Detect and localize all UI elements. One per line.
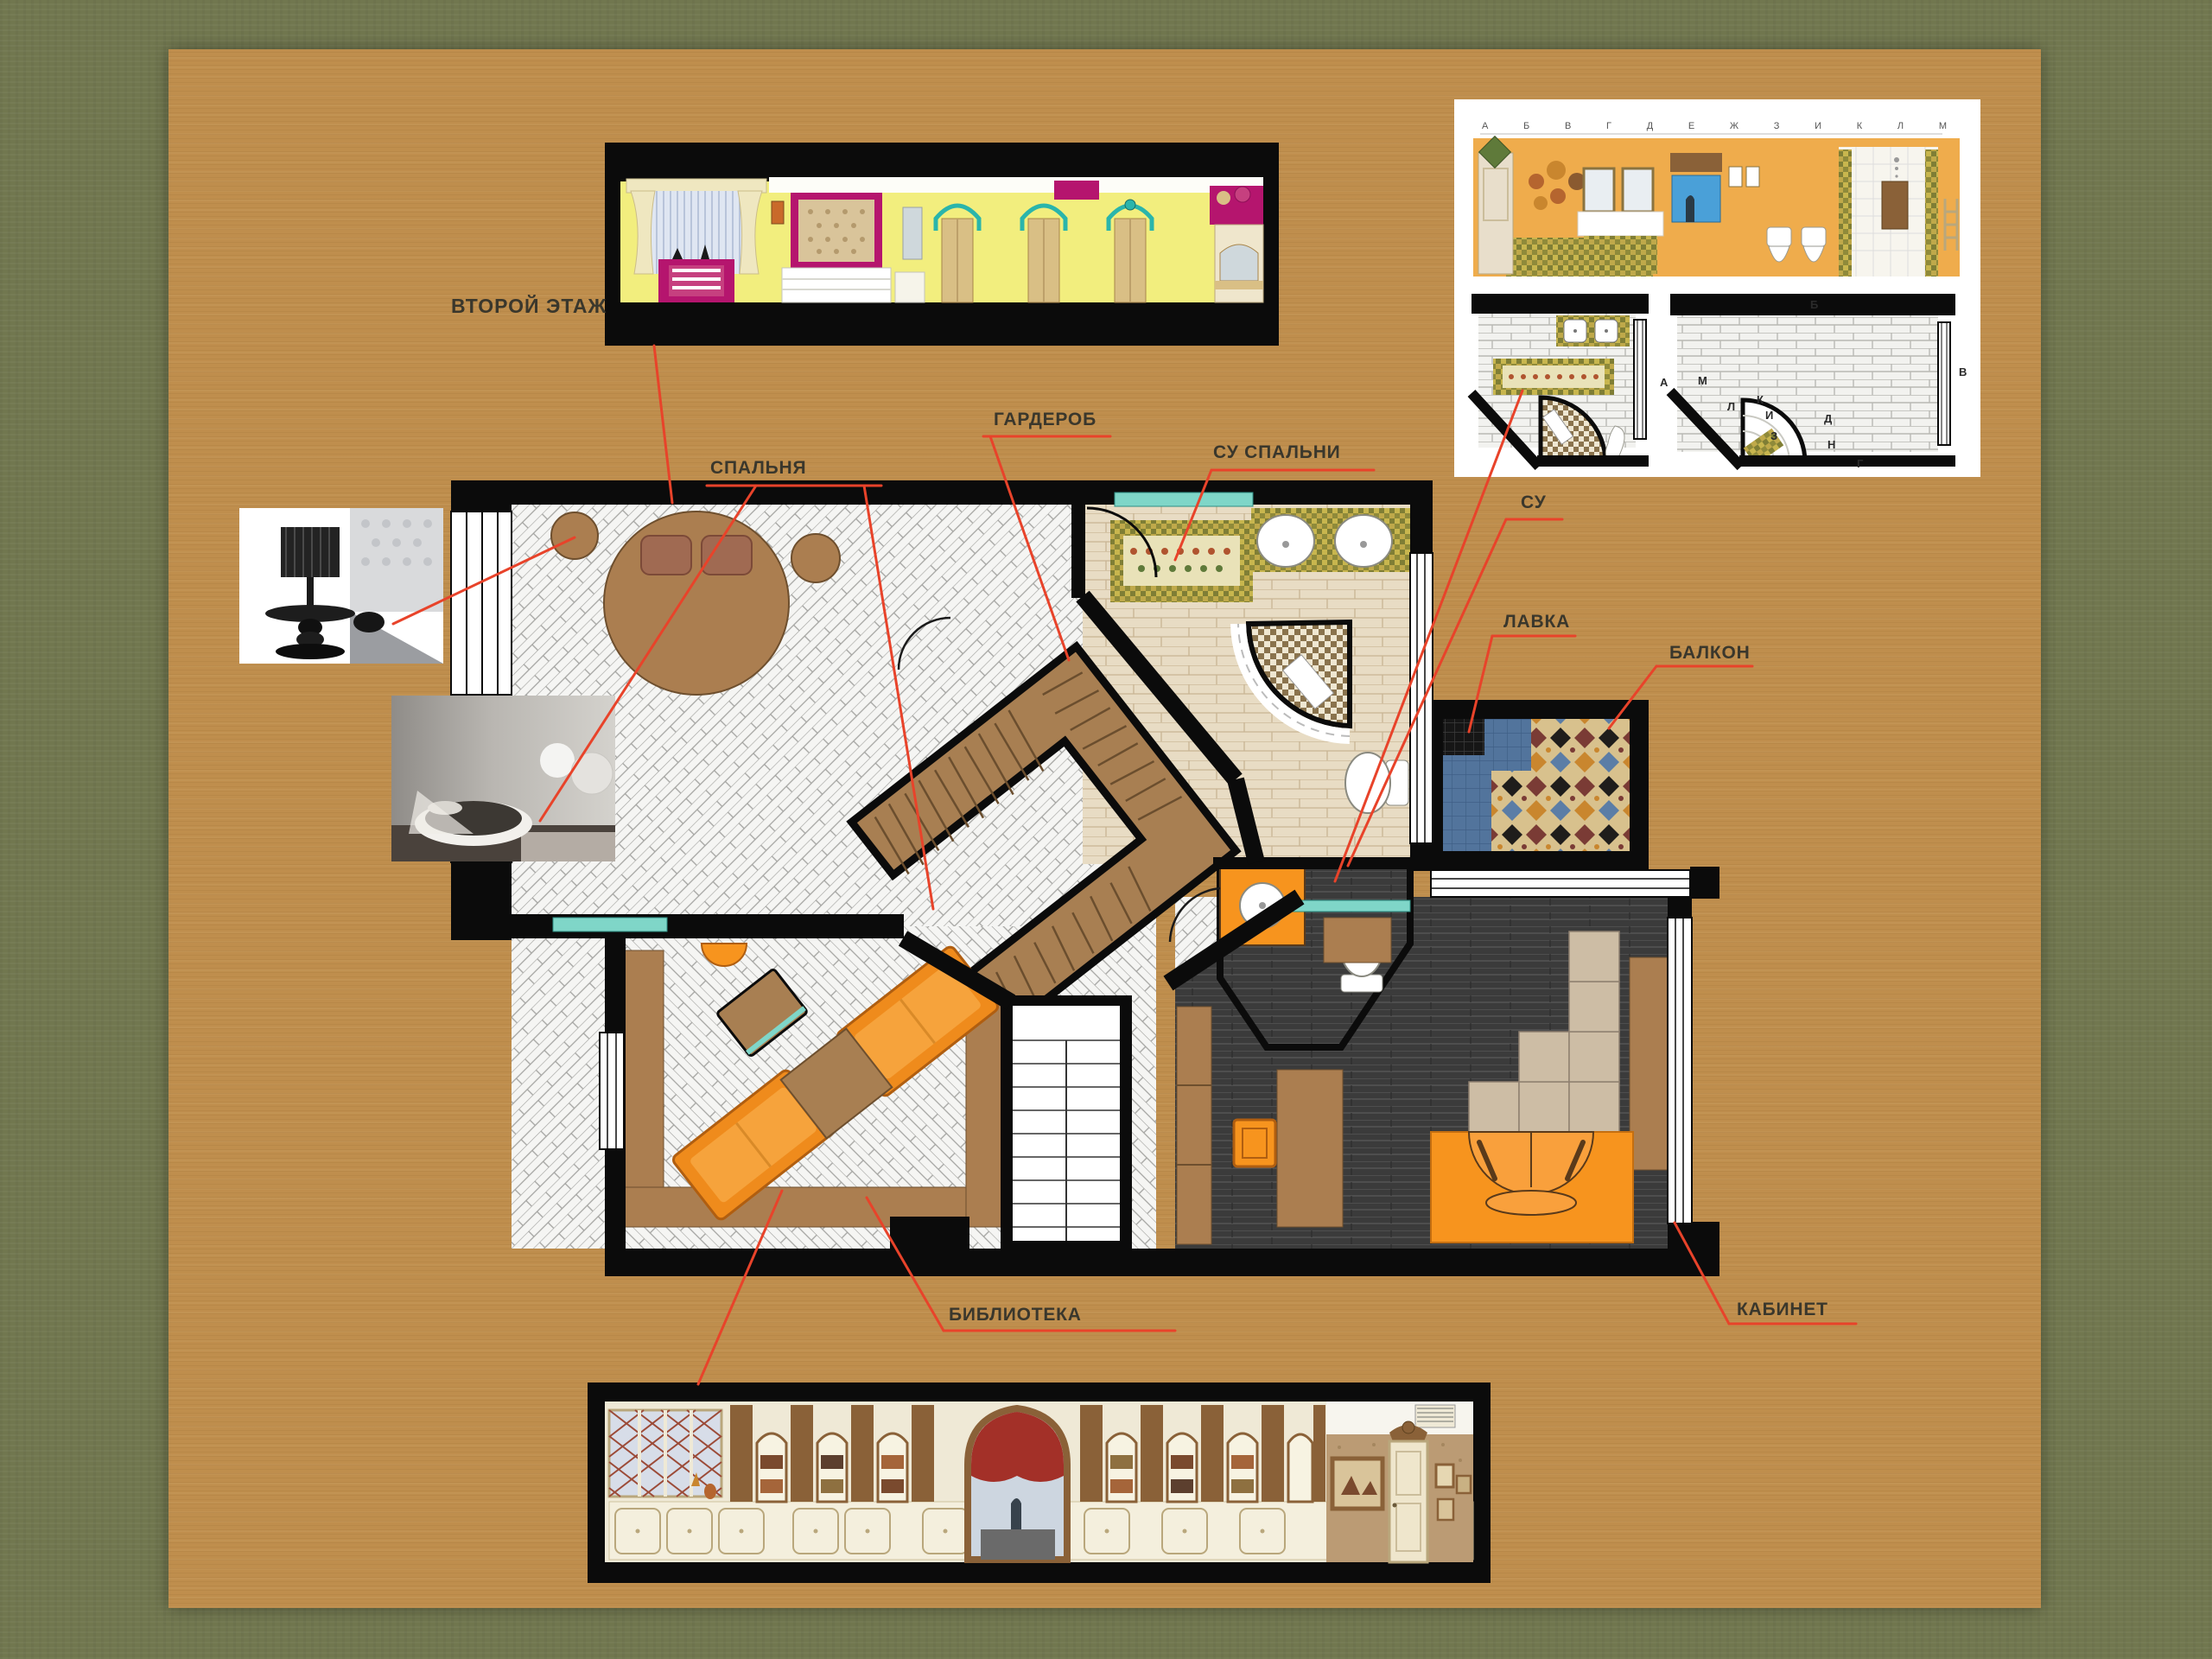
label-bench: ЛАВКА bbox=[1503, 612, 1570, 632]
label-library: БИБЛИОТЕКА bbox=[949, 1305, 1082, 1325]
label-wardrobe: ГАРДЕРОБ bbox=[994, 410, 1096, 429]
label-bedroom: СПАЛЬНЯ bbox=[710, 458, 806, 478]
label-study: КАБИНЕТ bbox=[1737, 1300, 1828, 1319]
leader-lines bbox=[393, 346, 1856, 1384]
label-balcony: БАЛКОН bbox=[1669, 643, 1751, 663]
floor-title: ВТОРОЙ ЭТАЖ bbox=[451, 294, 607, 317]
presentation-board-page: А Б В Г Д Е Ж З И К Л М bbox=[0, 0, 2212, 1659]
label-bathroom: СУ bbox=[1521, 493, 1547, 512]
callout-overlay: ВТОРОЙ ЭТАЖ СПАЛЬНЯ ГАРДЕРОБ СУ СПАЛЬНИ … bbox=[0, 0, 2212, 1659]
label-bedroom-bathroom: СУ СПАЛЬНИ bbox=[1213, 442, 1341, 462]
